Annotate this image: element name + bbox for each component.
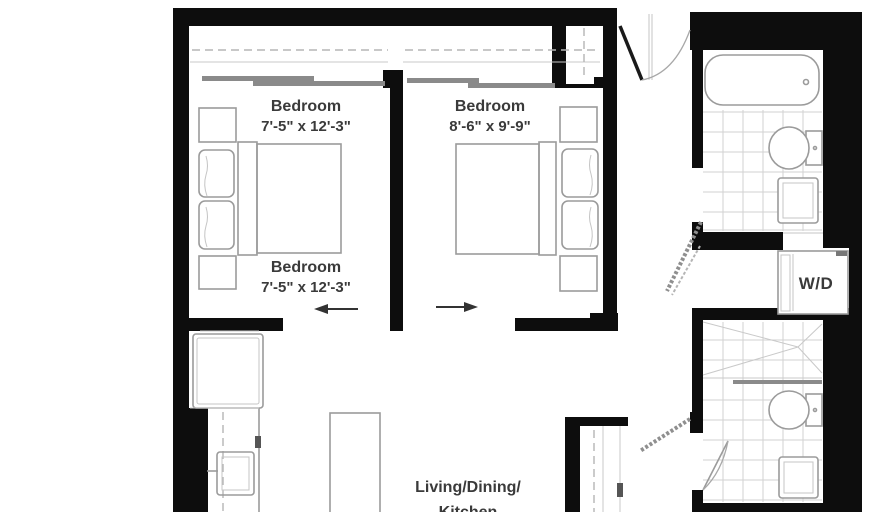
floor-plan-drawing (0, 0, 896, 512)
closet-rails (202, 76, 555, 88)
mattress (456, 144, 539, 254)
headboard (238, 142, 257, 255)
entry-door-leaf (620, 26, 642, 80)
bathroom-sink (778, 178, 818, 223)
pillow (199, 201, 234, 249)
bedroom-2-label: Bedroom 8'-6" x 9'-9" (395, 97, 585, 137)
arrow-right-icon (464, 302, 478, 312)
toilet (769, 391, 809, 429)
nightstand (560, 256, 597, 291)
mattress (257, 144, 341, 253)
toilet (769, 127, 809, 169)
closet-tab (617, 483, 623, 497)
hall-door-leaf (640, 419, 690, 451)
bedroom-window-lines (190, 50, 600, 62)
pillow (199, 150, 234, 197)
bathroom-1-door-leaf (667, 222, 701, 291)
washer-dryer-label: W/D (790, 274, 842, 294)
fridge (193, 334, 263, 408)
bedroom-1-label: Bedroom 7'-5" x 12'-3" (206, 97, 406, 137)
kitchen (190, 331, 380, 512)
living-closet (594, 426, 623, 512)
living-dining-kitchen-label: Living/Dining/ Kitchen (368, 475, 568, 512)
pillow (562, 201, 598, 249)
bedroom-1-label-lower: Bedroom 7'-5" x 12'-3" (206, 258, 406, 298)
room-dims: 8'-6" x 9'-9" (395, 117, 585, 137)
floor-plan: Bedroom 7'-5" x 12'-3" Bedroom 7'-5" x 1… (0, 0, 896, 512)
shower-door-track (733, 380, 822, 384)
bathroom-2 (640, 322, 822, 502)
headboard (539, 142, 556, 255)
room-name: Bedroom (206, 258, 406, 278)
bathtub (705, 55, 819, 105)
room-dims: 7'-5" x 12'-3" (206, 278, 406, 298)
bathroom-2-door-leaf (703, 441, 728, 490)
washer-dryer-control (836, 251, 847, 256)
room-name: Bedroom (395, 97, 585, 117)
room-name-line1: Living/Dining/ (368, 475, 568, 500)
room-name: Bedroom (206, 97, 406, 117)
pillow (562, 149, 598, 197)
counter-tab (255, 436, 261, 448)
arrow-left-icon (314, 304, 328, 314)
room-dims: 7'-5" x 12'-3" (206, 117, 406, 137)
laundry-door-leaf (672, 246, 700, 295)
entry-door (620, 14, 690, 80)
bathroom-sink (779, 457, 818, 498)
room-name-line2: Kitchen (368, 500, 568, 512)
